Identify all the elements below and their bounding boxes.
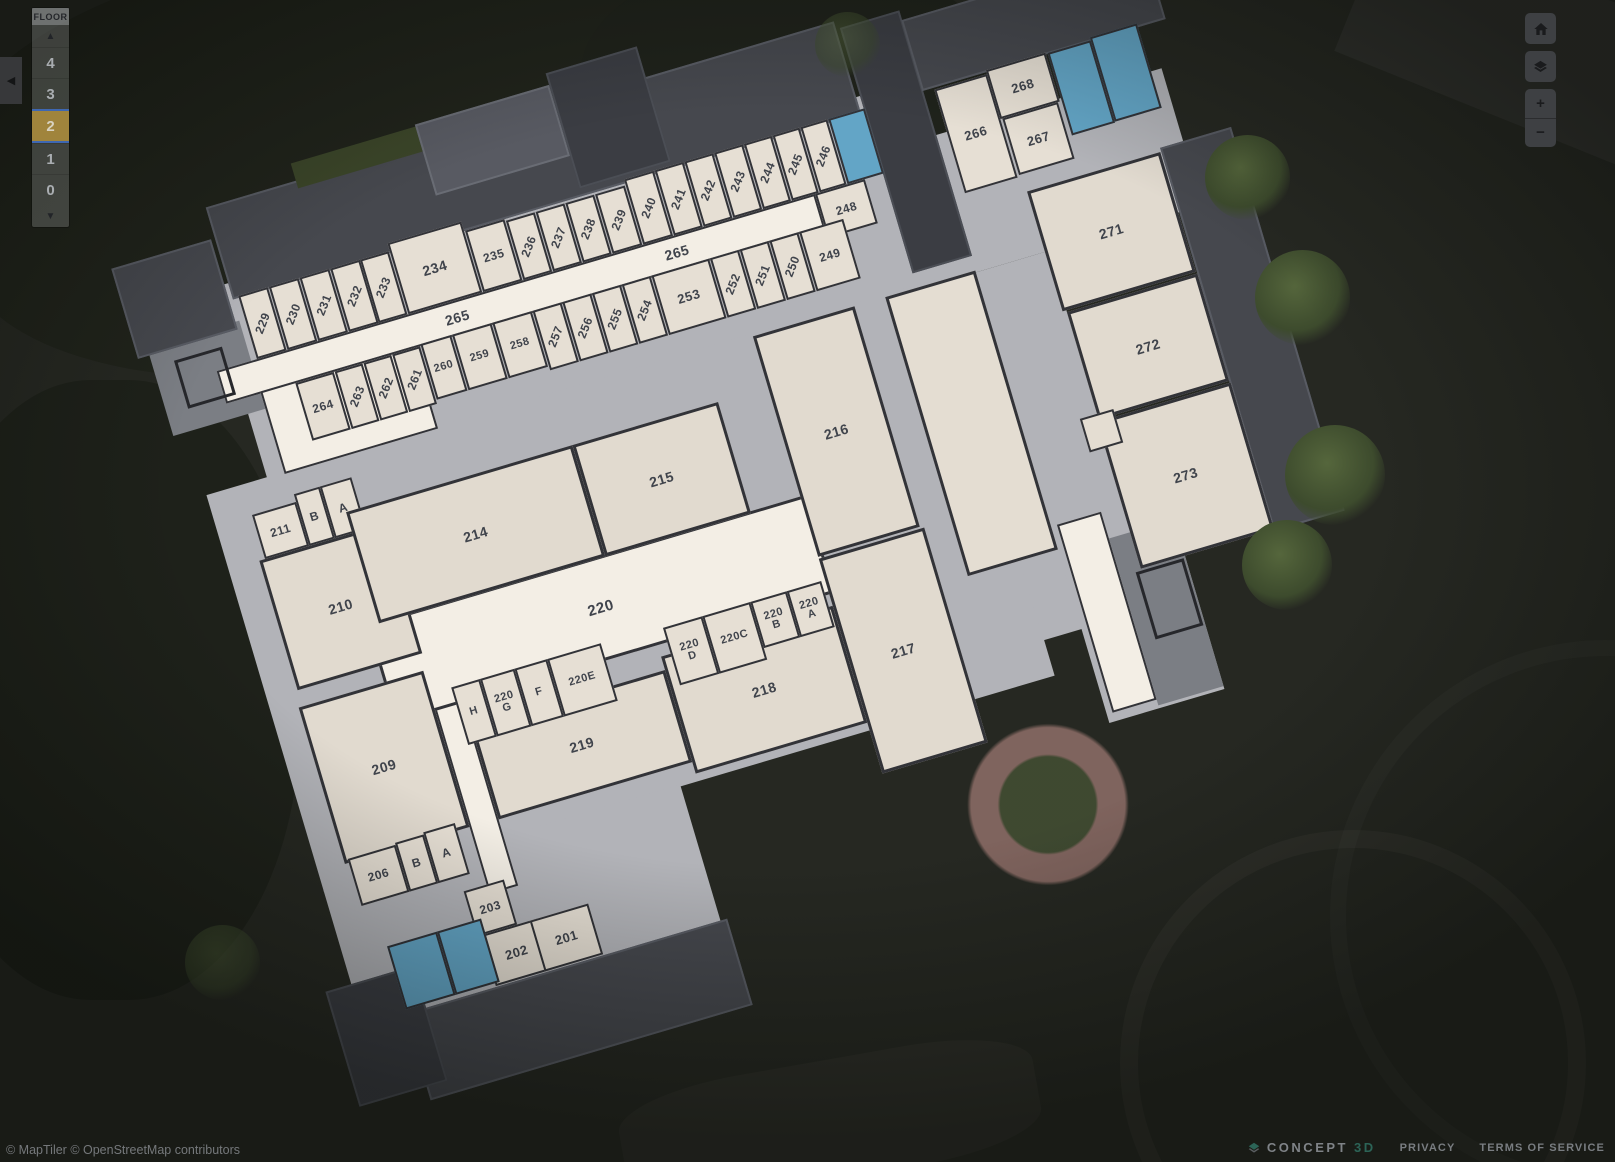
floor-selector: FLOOR ▲ 4 3 2 1 0 ▼ — [32, 8, 69, 227]
room-label: 220E — [568, 671, 598, 690]
room-label: A — [440, 846, 452, 860]
room-label: 250 — [783, 254, 802, 279]
room-label: 237 — [549, 225, 568, 250]
room-label: 220 G — [493, 689, 518, 716]
room-label: 252 — [723, 272, 742, 297]
room-label: 241 — [669, 186, 688, 211]
room-label: 220 — [586, 598, 616, 620]
terms-link[interactable]: TERMS OF SERVICE — [1479, 1142, 1605, 1154]
room-label: 266 — [963, 124, 989, 143]
privacy-link[interactable]: PRIVACY — [1400, 1142, 1456, 1154]
room-label: 234 — [421, 257, 449, 278]
room-label: 251 — [753, 263, 772, 288]
room-label: 255 — [606, 306, 625, 331]
room-label: 248 — [834, 200, 858, 218]
room-label: 244 — [758, 160, 777, 185]
room-label: 220C — [720, 629, 750, 648]
zoom-in-button[interactable]: + — [1525, 89, 1556, 119]
room-label: 262 — [376, 375, 395, 400]
map-attribution[interactable]: © MapTiler © OpenStreetMap contributors — [6, 1143, 240, 1157]
room-label: 218 — [750, 679, 778, 700]
room-label: 243 — [729, 169, 748, 194]
room-label: 210 — [327, 597, 355, 618]
room-label: B — [410, 856, 422, 870]
room-label: 258 — [509, 337, 531, 353]
floorplan-layer: 2202292302312322332342352362372382392402… — [0, 0, 1615, 1162]
room-label: 217 — [889, 640, 917, 661]
room-label: 273 — [1172, 465, 1200, 486]
brand-suffix: 3D — [1354, 1140, 1376, 1155]
brand-text: CONCEPT — [1267, 1140, 1348, 1155]
floor-button-0[interactable]: 0 — [32, 174, 69, 205]
floor-up-button[interactable]: ▲ — [32, 25, 69, 47]
room-label: 206 — [366, 866, 390, 884]
room-label: 238 — [579, 216, 598, 241]
room-label: 232 — [345, 284, 364, 309]
room-label: 236 — [519, 234, 538, 259]
room-label: 242 — [699, 178, 718, 203]
home-button[interactable] — [1525, 13, 1556, 44]
sidebar-collapse-button[interactable]: ◀ — [0, 57, 22, 104]
room-label: 220 B — [763, 606, 788, 633]
room-label: 214 — [462, 524, 490, 545]
room-label: 257 — [546, 324, 565, 349]
room-label: 220 A — [798, 596, 823, 623]
room-label: 268 — [1010, 76, 1036, 95]
room-label: 253 — [676, 287, 702, 306]
room-label: 264 — [311, 397, 335, 415]
room-label: 216 — [822, 421, 850, 442]
room-label: 256 — [576, 315, 595, 340]
room-label: 203 — [478, 899, 502, 917]
room-label: 201 — [553, 928, 579, 947]
room-label: 231 — [314, 293, 333, 318]
room-label: 211 — [269, 522, 292, 540]
room-label: 233 — [374, 275, 393, 300]
footer-bar: CONCEPT3D PRIVACY TERMS OF SERVICE — [1247, 1140, 1605, 1155]
collapse-arrow-icon: ◀ — [7, 74, 15, 87]
floor-button-3[interactable]: 3 — [32, 78, 69, 109]
room-label: 245 — [786, 152, 805, 177]
room-label: 272 — [1134, 336, 1162, 357]
room-label: 209 — [370, 757, 398, 778]
room-label: 229 — [253, 311, 272, 336]
floor-down-button[interactable]: ▼ — [32, 205, 69, 227]
room-label: 259 — [469, 349, 491, 365]
room-label: 267 — [1025, 129, 1051, 148]
room-label: 240 — [639, 195, 658, 220]
room-label: 235 — [482, 247, 506, 265]
floor-button-4[interactable]: 4 — [32, 47, 69, 78]
room-label: 261 — [405, 367, 424, 392]
concept3d-logo-icon — [1247, 1141, 1261, 1155]
layers-button[interactable] — [1525, 51, 1556, 82]
room-label: F — [534, 686, 544, 699]
zoom-control: + − — [1525, 89, 1556, 147]
layers-icon — [1532, 58, 1549, 75]
room-label: 246 — [814, 144, 833, 169]
room-label: B — [308, 509, 320, 523]
room-label: 265 — [663, 242, 691, 263]
room-label: 265 — [443, 307, 471, 328]
room-label: H — [468, 705, 479, 718]
map-viewport[interactable]: 2202292302312322332342352362372382392402… — [0, 0, 1615, 1162]
room-label: 271 — [1097, 221, 1125, 242]
room-label: 202 — [504, 943, 530, 962]
room-label: 263 — [347, 384, 366, 409]
zoom-out-button[interactable]: − — [1525, 119, 1556, 148]
room-label: 249 — [818, 246, 842, 264]
room-label: 219 — [568, 734, 596, 755]
home-icon — [1533, 21, 1549, 37]
floor-button-2-selected[interactable]: 2 — [32, 109, 69, 143]
floor-button-1[interactable]: 1 — [32, 143, 69, 174]
room-label: 230 — [283, 302, 302, 327]
room-label: 215 — [648, 469, 676, 490]
room-label: 220 D — [678, 637, 703, 664]
room-label: 254 — [635, 298, 654, 323]
room-label: 239 — [609, 207, 628, 232]
concept3d-brand[interactable]: CONCEPT3D — [1247, 1140, 1376, 1155]
floor-selector-title: FLOOR — [32, 8, 69, 25]
room-label: 260 — [433, 359, 455, 375]
